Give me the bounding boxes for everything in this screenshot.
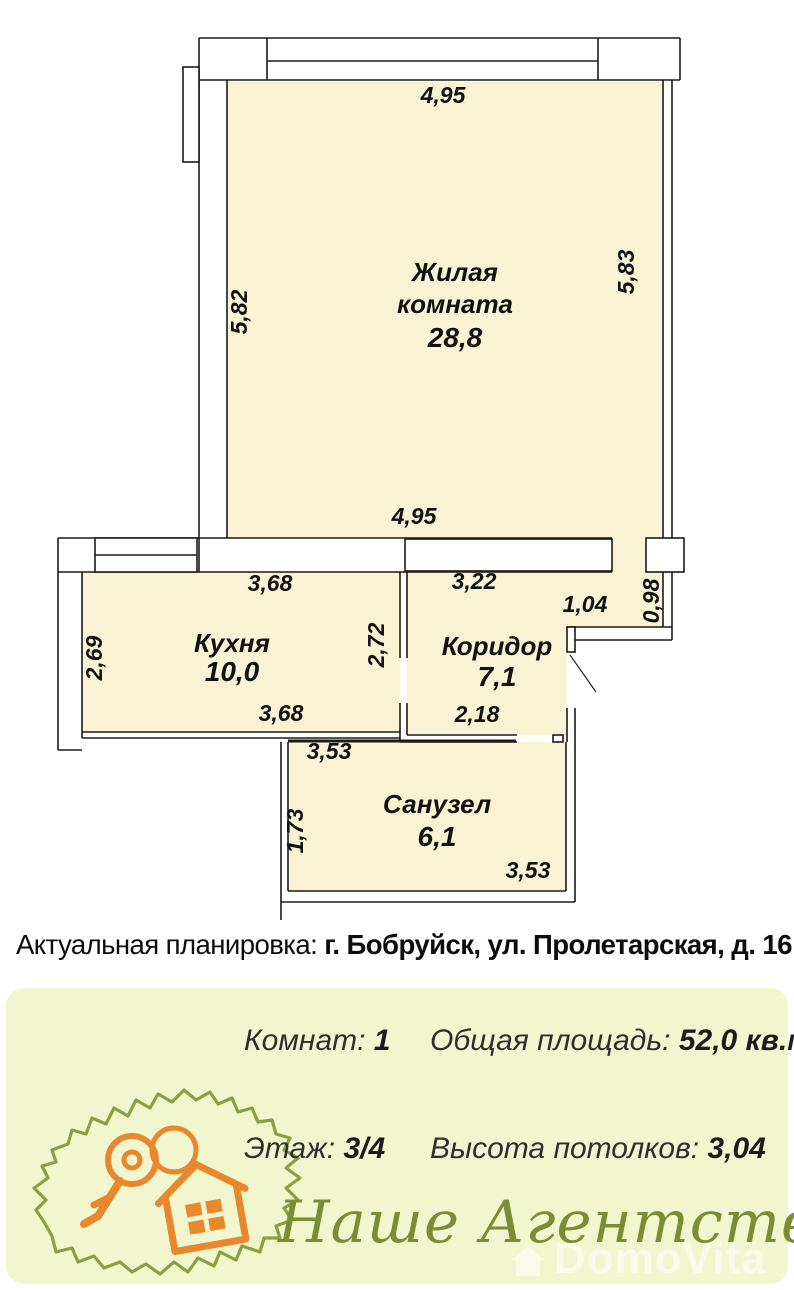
stat-total-area-value: 52,0 кв.м. [679, 1024, 794, 1057]
entrance-door-jamb [567, 627, 575, 652]
agency-name-script: Наше Агентство [278, 1188, 794, 1256]
belarus-map-outline [34, 1090, 300, 1274]
stat-ceiling-height-value: 3,04 [707, 1132, 765, 1165]
entrance-door-opening [646, 538, 684, 572]
bathroom-door-stub [553, 735, 563, 742]
stat-ceiling-height-label: Высота потолков: [430, 1132, 699, 1165]
dimension-label: 3,68 [248, 570, 293, 596]
dimension-label: 1,04 [563, 591, 608, 617]
stat-ceiling-height: Высота потолков: 3,04 [430, 1132, 766, 1166]
stat-floor: Этаж: 3/4 [244, 1132, 385, 1166]
real-estate-listing-image: 4,955,825,834,953,683,221,040,982,722,69… [0, 0, 794, 1290]
dimension-label: 3,53 [506, 857, 551, 883]
dimension-label: 2,18 [454, 701, 500, 727]
dimension-label: 5,82 [226, 289, 252, 334]
corridor-niche-wall [567, 627, 672, 640]
address-line: Актуальная планировка: г. Бобруйск, ул. … [16, 929, 780, 961]
stat-rooms-value: 1 [374, 1024, 391, 1057]
stat-floor-value: 3/4 [343, 1132, 385, 1165]
living-room-door-opening [405, 539, 612, 571]
room-fills [82, 82, 663, 891]
room-name: Санузел [383, 789, 491, 819]
dimension-label: 4,95 [391, 503, 438, 529]
dimension-label: 2,69 [81, 635, 107, 681]
room-name: комната [397, 289, 513, 319]
dimension-label: 5,83 [613, 249, 639, 294]
dimension-label: 4,95 [420, 82, 467, 108]
dimension-label: 3,53 [307, 738, 352, 764]
stat-total-area-label: Общая площадь: [430, 1024, 670, 1057]
stat-total-area: Общая площадь: 52,0 кв.м. [430, 1024, 794, 1058]
dimension-label: 0,98 [638, 578, 664, 623]
room-name: Коридор [442, 631, 553, 661]
keys-icon [84, 1128, 196, 1224]
address-prefix: Актуальная планировка: [16, 929, 324, 960]
floor-plan: 4,955,825,834,953,683,221,040,982,722,69… [0, 0, 794, 925]
dimension-label: 3,22 [452, 568, 497, 594]
stat-rooms-label: Комнат: [244, 1024, 365, 1057]
room-area: 6,1 [418, 821, 457, 852]
room-area: 7,1 [478, 661, 517, 692]
agency-logo [28, 1074, 318, 1286]
balcony-side-ledge [183, 67, 199, 162]
agency-footer-card: Комнат: 1 Общая площадь: 52,0 кв.м. Этаж… [6, 988, 788, 1284]
room-area: 28,8 [427, 322, 483, 353]
room-name: Жилая [410, 257, 498, 287]
passage-area [612, 538, 647, 572]
stat-floor-label: Этаж: [244, 1132, 335, 1165]
door-swing-line [570, 655, 596, 692]
room-area: 10,0 [205, 656, 260, 687]
dimension-label: 3,68 [259, 700, 304, 726]
dimension-label: 2,72 [363, 622, 389, 668]
address-bold: г. Бобруйск, ул. Пролетарская, д. 16 [324, 929, 792, 960]
room-name: Кухня [194, 628, 270, 658]
dimension-label: 1,73 [282, 808, 308, 853]
stat-rooms: Комнат: 1 [244, 1024, 390, 1058]
